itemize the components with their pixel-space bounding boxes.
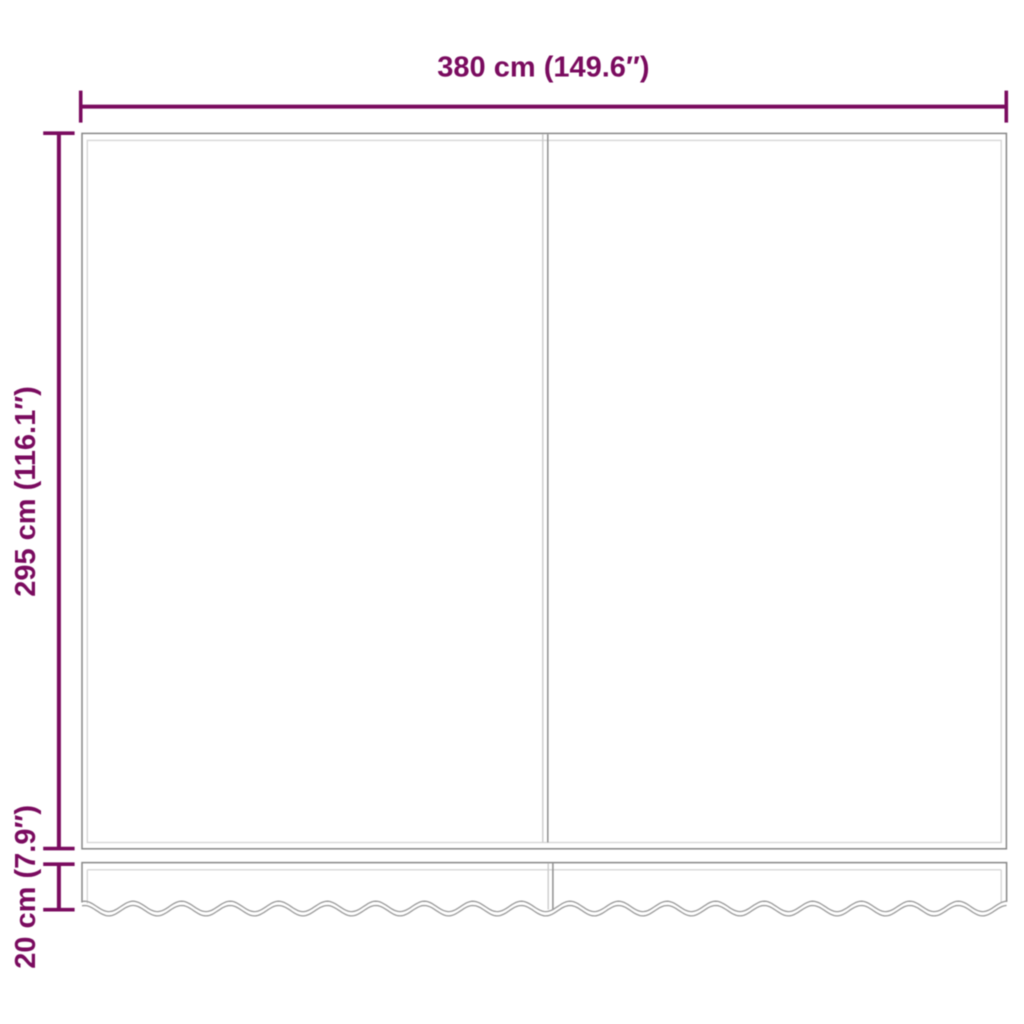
svg-text:295 cm (116.1″): 295 cm (116.1″)	[10, 386, 42, 597]
svg-text:20 cm (7.9″): 20 cm (7.9″)	[10, 805, 42, 969]
svg-text:380 cm (149.6″): 380 cm (149.6″)	[437, 52, 649, 84]
